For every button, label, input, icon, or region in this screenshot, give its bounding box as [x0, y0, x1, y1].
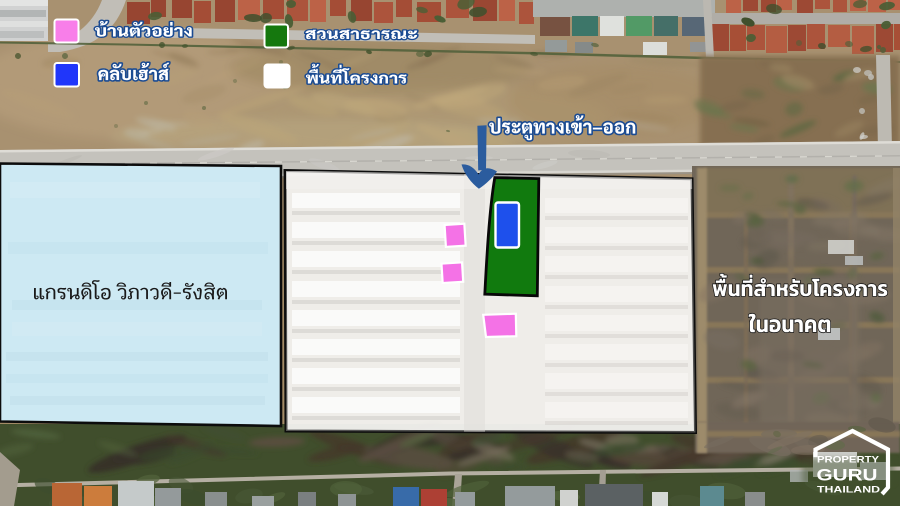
- svg-text:PROPERTY: PROPERTY: [817, 455, 880, 466]
- svg-text:THAILAND: THAILAND: [817, 485, 881, 495]
- svg-text:GURU: GURU: [817, 466, 878, 485]
